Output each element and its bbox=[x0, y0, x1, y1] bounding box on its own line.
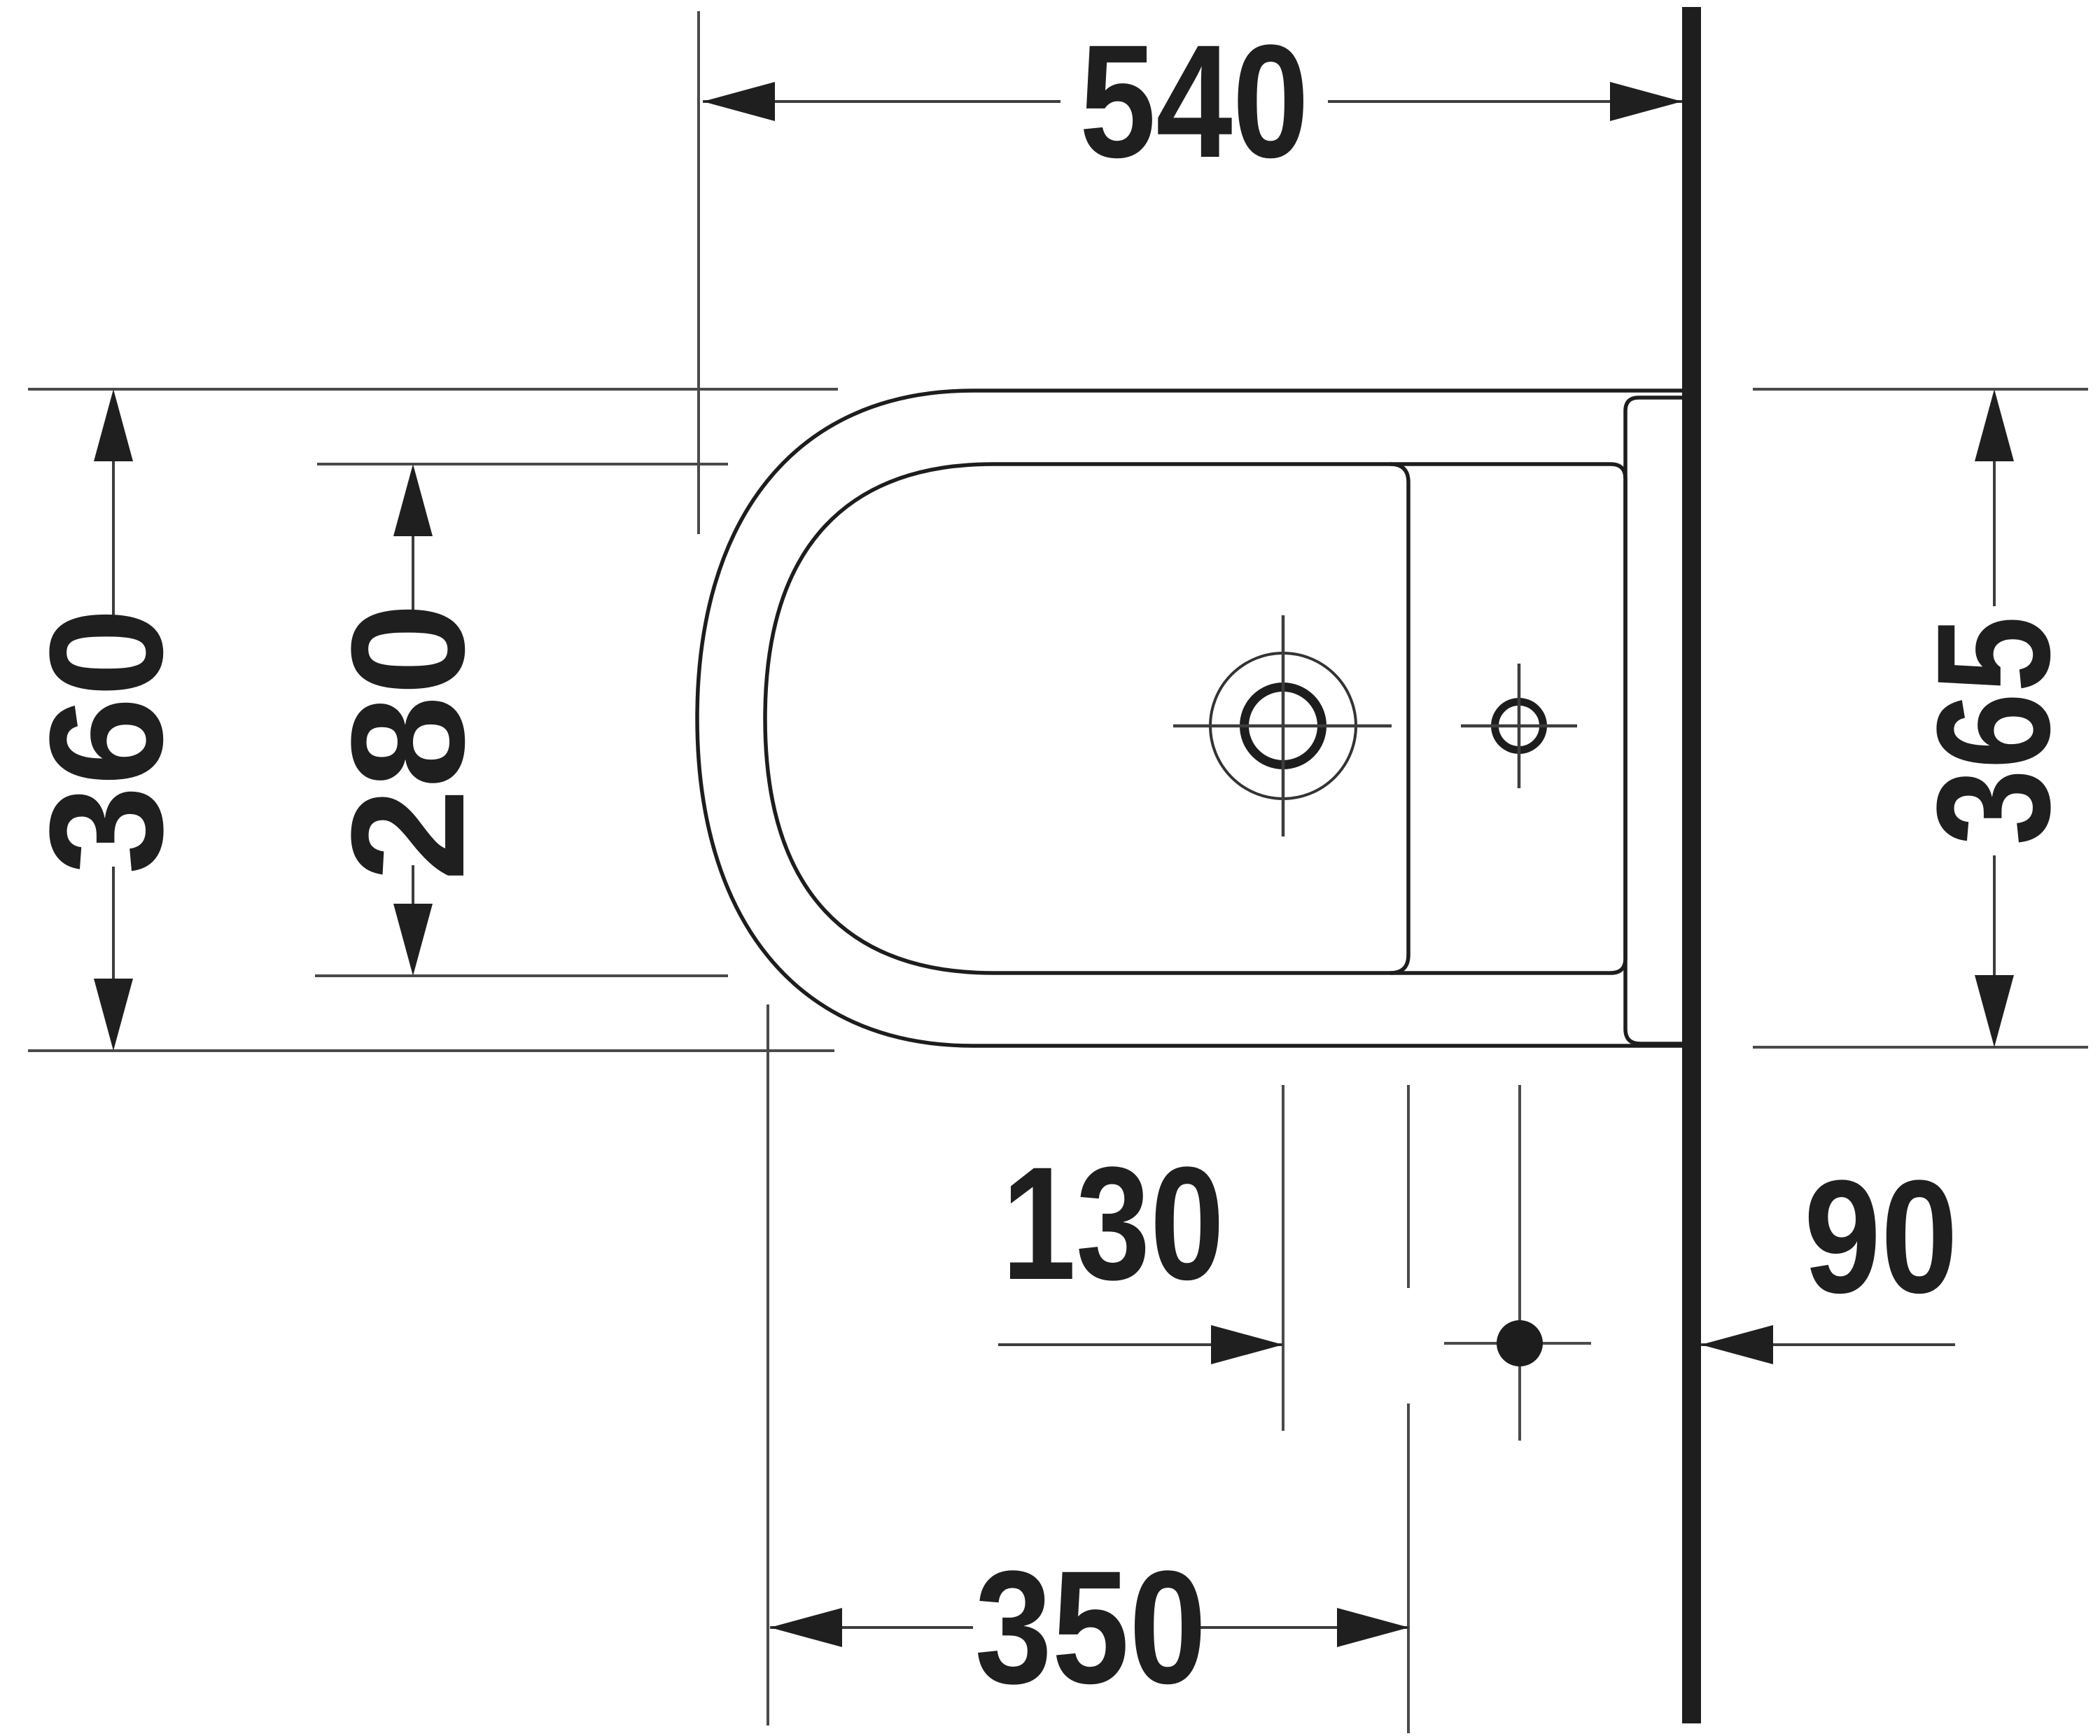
svg-text:360: 360 bbox=[16, 608, 196, 875]
svg-text:350: 350 bbox=[975, 1537, 1207, 1717]
svg-text:90: 90 bbox=[1804, 1147, 1958, 1326]
svg-text:130: 130 bbox=[1002, 1133, 1224, 1313]
svg-text:365: 365 bbox=[1903, 616, 2083, 846]
svg-text:280: 280 bbox=[318, 603, 498, 881]
svg-text:540: 540 bbox=[1079, 11, 1309, 191]
